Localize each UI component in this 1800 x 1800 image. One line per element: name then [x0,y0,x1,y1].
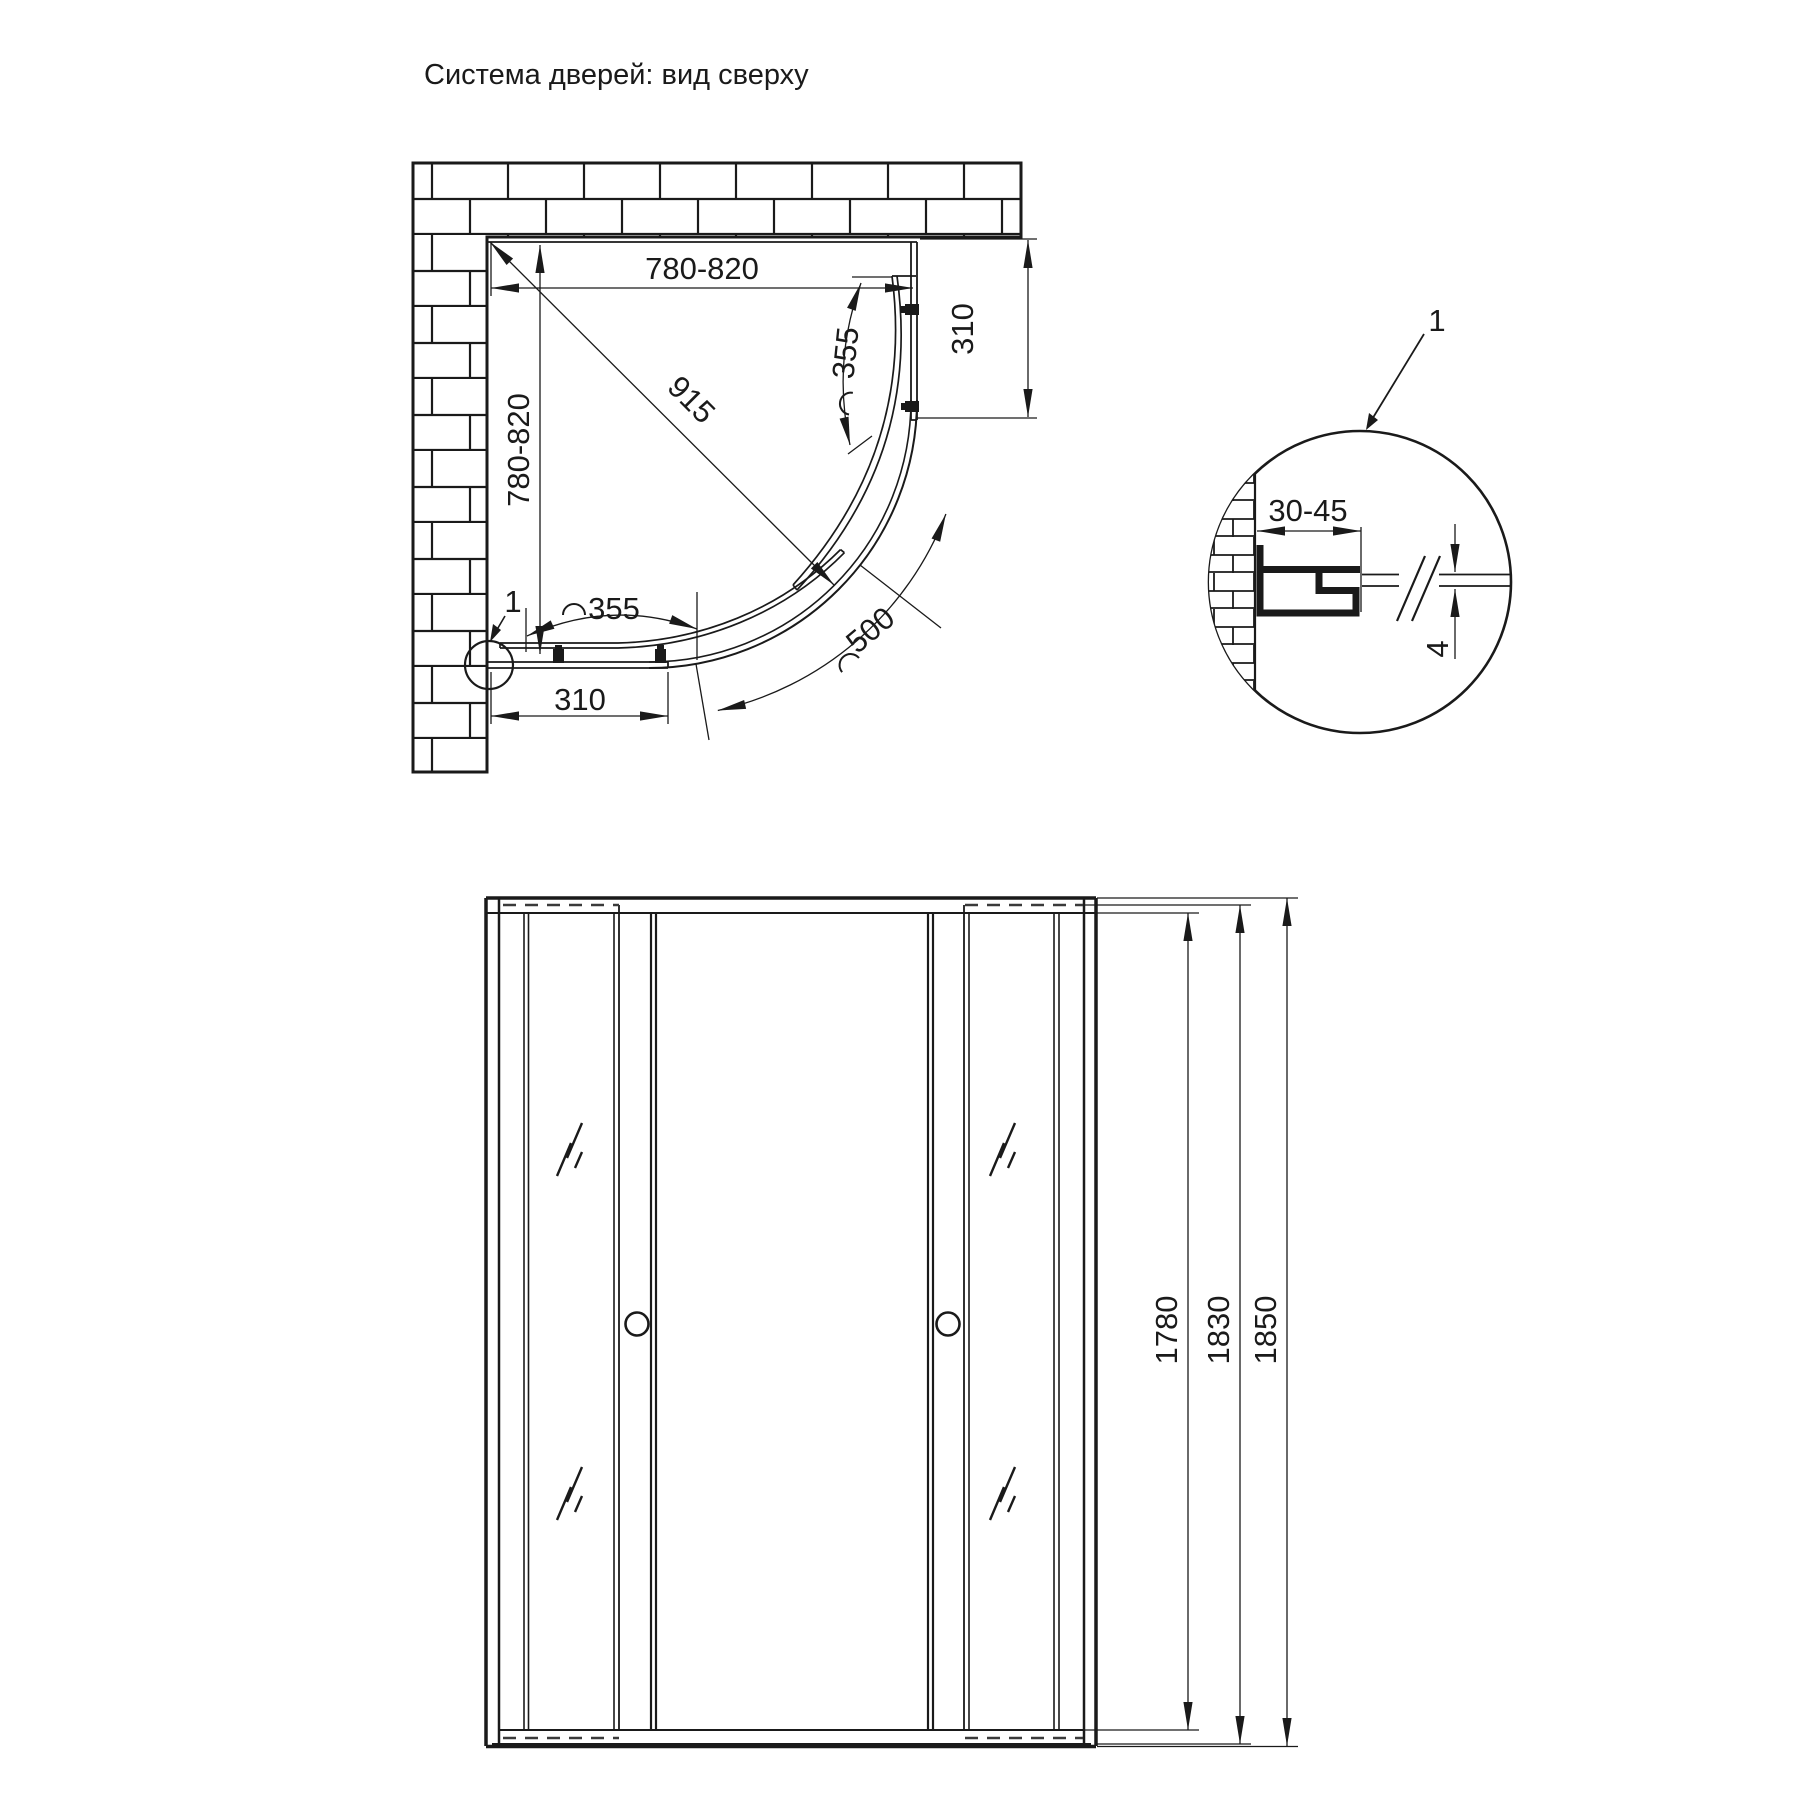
dim-depth-left-value: 780-820 [501,393,536,507]
detail-view-leader [1371,334,1424,421]
sliding-door-upper [793,276,916,590]
dim-310-right: 310 [917,239,1037,418]
dim-width-top-value: 780-820 [645,251,759,286]
dim-1780-value: 1780 [1149,1296,1184,1365]
detail-marker-label: 1 [504,584,521,619]
dim-310-bottom: 310 [491,672,668,724]
dim-30-45-value: 30-45 [1268,493,1347,528]
drawing-title: Система дверей: вид сверху [424,59,809,91]
glass-mark [990,1467,1015,1520]
dim-1850-value: 1850 [1248,1296,1283,1365]
dim-310-right-value: 310 [945,303,980,355]
front-view: 1780 1830 1850 [486,898,1298,1747]
fixed-panel-bottom [487,662,668,668]
profile-dashed-lines [503,905,1083,1738]
detail-view-arrowhead [1366,413,1378,430]
dim-radius-value: 500 [839,600,901,660]
door-handle-left [626,1313,649,1336]
glass-mark [990,1123,1015,1176]
dim-1830-value: 1830 [1201,1296,1236,1365]
frame-and-panel-verticals [486,898,1096,1746]
dim-radius-500: 500 [696,514,946,740]
dim-width-top: 780-820 [491,242,913,296]
detail-view: 30-45 4 1 [1200,303,1511,741]
dim-diagonal-915: 915 [490,242,834,585]
dim-1850: 1850 [1097,898,1298,1747]
shower-enclosure-drawing: Система дверей: вид сверху 1 [0,0,1800,1800]
technical-drawing-page: Система дверей: вид сверху 1 [0,0,1800,1800]
top-view: 1 780-820 310 915 780-820 355 [413,163,1037,772]
dim-glass-thickness-value: 4 [1420,640,1455,657]
detail-view-marker-label: 1 [1428,303,1445,338]
dim-1780: 1780 [1085,913,1199,1730]
dim-355-lower: 355 [526,591,697,660]
fixed-panel-right [911,242,917,420]
dim-310-bottom-value: 310 [554,682,606,717]
door-handle-right [937,1313,960,1336]
dim-355-upper-value: 355 [825,325,865,380]
dim-355-lower-value: 355 [588,591,640,626]
glass-mark [557,1467,582,1520]
sliding-door-lower [500,550,844,648]
glass-mark [557,1123,582,1176]
arc-length-symbol [563,604,585,615]
arc-length-symbol [838,391,853,415]
